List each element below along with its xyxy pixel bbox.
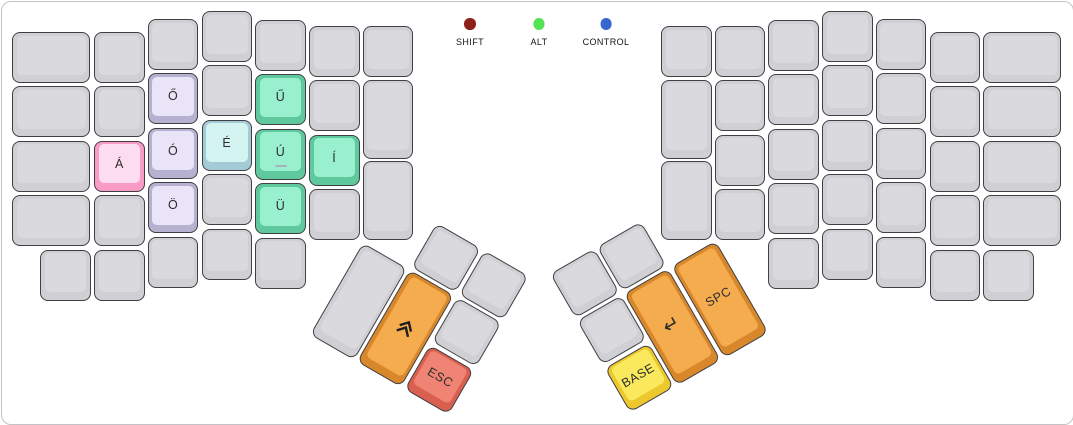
- keycap-face: [773, 132, 815, 171]
- key-label: Ő: [168, 90, 178, 103]
- key-right-c6-r3[interactable]: [983, 195, 1061, 246]
- key-label: ESC: [425, 365, 455, 389]
- key-o-acute[interactable]: Ó: [148, 128, 199, 179]
- key-right-c4-r1[interactable]: [876, 73, 927, 124]
- legend-item-shift: SHIFT: [456, 18, 484, 47]
- key-right-c6-r2[interactable]: [983, 141, 1061, 192]
- keycap-face: [17, 90, 86, 129]
- keycap-face: [988, 90, 1057, 129]
- keycap-face: [934, 90, 976, 129]
- key-right-c1-r0[interactable]: [715, 26, 766, 77]
- keycap-face: [988, 144, 1057, 183]
- legend-label-control: CONTROL: [583, 38, 630, 47]
- keycap-face: [206, 178, 248, 217]
- key-left-c5-r3[interactable]: [309, 189, 360, 240]
- keycap-face: [773, 241, 815, 280]
- legend-item-control: CONTROL: [583, 18, 630, 47]
- keycap-face: [880, 186, 922, 225]
- keycap-face: Ű: [260, 78, 302, 117]
- keycap-face: [45, 253, 87, 292]
- key-left-c0-r4[interactable]: [40, 250, 91, 301]
- keycap-face: [934, 144, 976, 183]
- key-label: Ö: [168, 199, 178, 212]
- key-right-c3-r0[interactable]: [822, 11, 873, 62]
- keycap-face: [314, 30, 356, 69]
- key-right-c1-r1[interactable]: [715, 80, 766, 131]
- keycap-face: [719, 84, 761, 123]
- keycap-face: [152, 23, 194, 62]
- keycap-face: [260, 241, 302, 280]
- keycap-face: [314, 193, 356, 232]
- key-right-c0-tall1[interactable]: [661, 80, 712, 159]
- keycap-face: [880, 23, 922, 62]
- control-color-dot: [600, 18, 612, 30]
- key-left-c0-r1[interactable]: [12, 86, 90, 137]
- keycap-face: [934, 253, 976, 292]
- keycap-face: [99, 199, 141, 238]
- key-label: É: [222, 137, 231, 150]
- keycap-face: Ü: [260, 187, 302, 226]
- keycap-face: [988, 36, 1057, 75]
- key-right-c2-r2[interactable]: [768, 129, 819, 180]
- key-right-c1-r3[interactable]: [715, 189, 766, 240]
- key-left-c0-r0[interactable]: [12, 32, 90, 83]
- key-right-c3-r1[interactable]: [822, 65, 873, 116]
- chevron-double-up-icon: [393, 313, 421, 340]
- key-right-c5-r4[interactable]: [930, 250, 981, 301]
- keycap-face: [17, 36, 86, 75]
- key-left-c6-r0[interactable]: [363, 26, 414, 77]
- keycap-face: [152, 240, 194, 279]
- keycap-face: Í: [314, 138, 356, 177]
- key-label: Ű: [276, 91, 286, 104]
- keycap-face: [206, 15, 248, 54]
- keycap-face: [99, 253, 141, 292]
- key-i-acute[interactable]: Í: [309, 135, 360, 186]
- key-o-umlaut[interactable]: Ö: [148, 182, 199, 233]
- key-label: Ó: [168, 145, 178, 158]
- key-label: ↵: [659, 312, 684, 338]
- keycap-face: [719, 193, 761, 232]
- key-left-c0-r3[interactable]: [12, 195, 90, 246]
- keycap-face: [773, 78, 815, 117]
- key-label: Ú: [276, 146, 286, 159]
- key-right-c2-r1[interactable]: [768, 74, 819, 125]
- keycap-face: [827, 69, 869, 108]
- key-a-acute[interactable]: Á: [94, 141, 145, 192]
- keycap-face: [988, 199, 1057, 238]
- keycap-face: [827, 15, 869, 54]
- keycap-face: [880, 77, 922, 116]
- key-right-c5-r2[interactable]: [930, 141, 981, 192]
- key-label: Á: [115, 158, 124, 171]
- key-left-c1-r1[interactable]: [94, 86, 145, 137]
- keycap-face: [206, 69, 248, 108]
- key-sub-underscore: [275, 165, 287, 168]
- key-left-c5-r1[interactable]: [309, 80, 360, 131]
- key-left-c5-r0[interactable]: [309, 26, 360, 77]
- keycap-face: [934, 199, 976, 238]
- key-left-c1-r0[interactable]: [94, 32, 145, 83]
- keycap-face: [99, 90, 141, 129]
- key-u-acute[interactable]: Ú: [255, 129, 306, 180]
- key-left-c6-tall1[interactable]: [363, 80, 414, 159]
- keycap-face: [99, 36, 141, 75]
- keycap-face: [555, 254, 611, 309]
- keycap-face: [773, 187, 815, 226]
- keycap-face: [260, 24, 302, 63]
- key-left-c4-r0[interactable]: [255, 20, 306, 71]
- keycap-face: [666, 83, 708, 150]
- key-o-double-acute[interactable]: Ő: [148, 73, 199, 124]
- keycap-face: [420, 228, 476, 283]
- keycap-face: [773, 24, 815, 63]
- key-right-c2-r0[interactable]: [768, 20, 819, 71]
- keycap-face: [827, 178, 869, 217]
- keycap-face: [719, 138, 761, 177]
- key-right-c6-r1[interactable]: [983, 86, 1061, 137]
- keycap-face: [934, 36, 976, 75]
- key-label: BASE: [619, 362, 656, 391]
- keycap-face: [719, 30, 761, 69]
- keycap-face: [583, 301, 639, 356]
- keycap-face: Á: [99, 144, 141, 183]
- key-label: SPC: [703, 286, 733, 310]
- keyboard-layout-canvas: SHIFT ALT CONTROL ÁŐÓÖÉŰÚÜÍ ESC BASE↵SPC: [1, 1, 1073, 425]
- key-left-c3-r1[interactable]: [202, 65, 253, 116]
- keycap-face: Ő: [152, 77, 194, 116]
- shift-color-dot: [464, 18, 476, 30]
- key-right-c3-r3[interactable]: [822, 174, 873, 225]
- key-left-c1-r4[interactable]: [94, 250, 145, 301]
- keycap-face: Ó: [152, 131, 194, 170]
- key-label: Ü: [276, 200, 286, 213]
- keycap-face: [827, 123, 869, 162]
- key-label: Í: [332, 152, 336, 165]
- keycap-face: [880, 240, 922, 279]
- keycap-face: [17, 199, 86, 238]
- legend-label-alt: ALT: [530, 38, 547, 47]
- key-left-c2-r0[interactable]: [148, 19, 199, 70]
- keycap-face: BASE: [610, 348, 666, 403]
- keycap-face: [988, 253, 1030, 292]
- keycap-face: [17, 144, 86, 183]
- key-u-umlaut[interactable]: Ü: [255, 183, 306, 234]
- keycap-face: [602, 227, 658, 282]
- legend-label-shift: SHIFT: [456, 38, 484, 47]
- keycap-face: [314, 84, 356, 123]
- key-right-c0-r0[interactable]: [661, 26, 712, 77]
- key-right-c6-r4[interactable]: [983, 250, 1034, 301]
- key-right-c1-r2[interactable]: [715, 135, 766, 186]
- legend-item-alt: ALT: [530, 18, 547, 47]
- key-right-c6-r0[interactable]: [983, 32, 1061, 83]
- key-right-c5-r1[interactable]: [930, 86, 981, 137]
- key-e-acute[interactable]: É: [202, 120, 253, 171]
- key-right-c2-r3[interactable]: [768, 183, 819, 234]
- keycap-face: [206, 232, 248, 271]
- keycap-face: [367, 83, 409, 150]
- key-right-c5-r3[interactable]: [930, 195, 981, 246]
- key-left-c3-r0[interactable]: [202, 11, 253, 62]
- key-right-c2-r4[interactable]: [768, 238, 819, 289]
- alt-color-dot: [533, 18, 545, 30]
- keycap-face: [367, 30, 409, 69]
- key-right-c4-r3[interactable]: [876, 182, 927, 233]
- key-u-double-acute[interactable]: Ű: [255, 74, 306, 125]
- key-left-c0-r2[interactable]: [12, 141, 90, 192]
- key-right-c4-r4[interactable]: [876, 237, 927, 288]
- keycap-face: [467, 255, 523, 310]
- keycap-face: [666, 30, 708, 69]
- keycap-face: É: [206, 123, 248, 162]
- key-left-c2-r4[interactable]: [148, 237, 199, 288]
- key-left-c3-r3[interactable]: [202, 174, 253, 225]
- keycap-face: Ö: [152, 186, 194, 225]
- key-right-c4-r2[interactable]: [876, 128, 927, 179]
- keycap-face: Ú: [260, 132, 302, 171]
- keycap-face: [880, 131, 922, 170]
- key-left-c3-r4[interactable]: [202, 229, 253, 280]
- key-right-c3-r2[interactable]: [822, 120, 873, 171]
- key-left-c4-r4[interactable]: [255, 238, 306, 289]
- key-left-c1-r3[interactable]: [94, 195, 145, 246]
- key-right-c4-r0[interactable]: [876, 19, 927, 70]
- key-right-c5-r0[interactable]: [930, 32, 981, 83]
- key-right-c3-r4[interactable]: [822, 229, 873, 280]
- keycap-face: [827, 232, 869, 271]
